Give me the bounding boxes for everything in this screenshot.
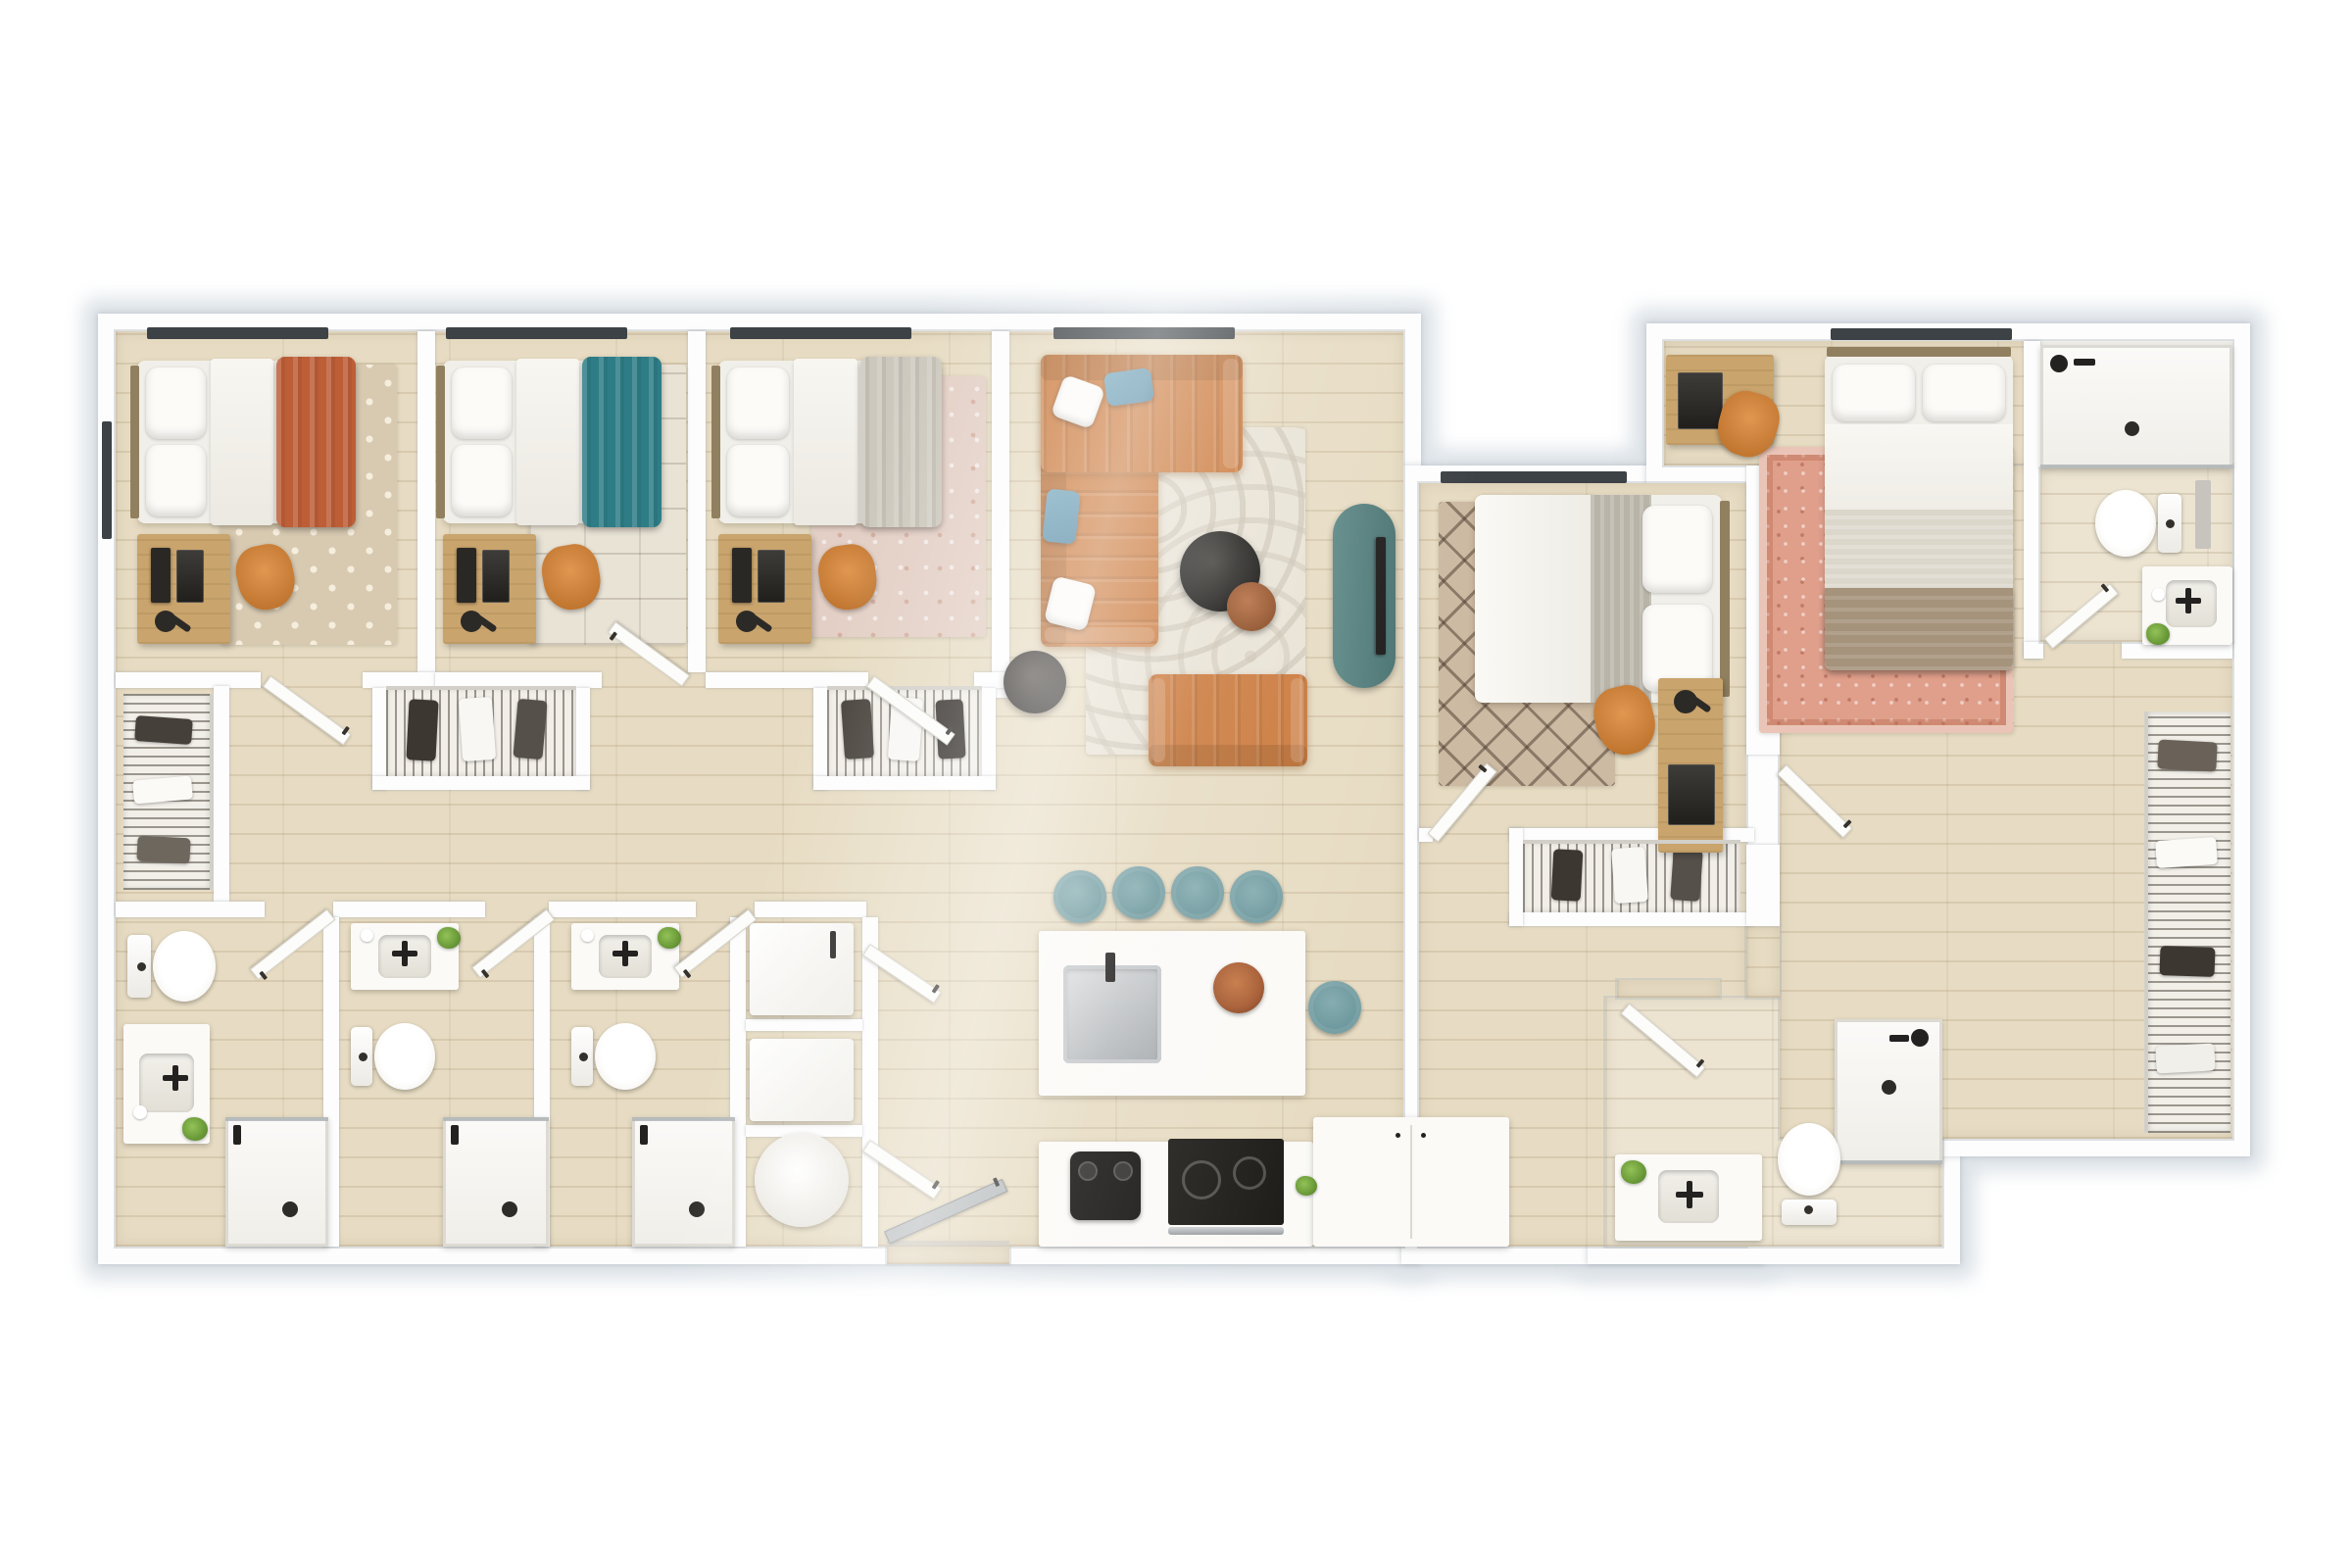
- closet-wire-shelf: [386, 688, 576, 776]
- range-cooktop: [1168, 1139, 1284, 1225]
- oven-handle: [1168, 1227, 1284, 1235]
- floor-plan: [0, 0, 2352, 1568]
- toilet: [127, 929, 221, 1005]
- media-console: [1333, 504, 1396, 688]
- teal-throw-pillow: [1103, 367, 1154, 407]
- refrigerator-counter: [1313, 1117, 1509, 1247]
- closet-rail: [210, 694, 214, 890]
- desk: [1658, 678, 1723, 853]
- wall-closet1: [214, 686, 229, 902]
- soap-jar: [581, 929, 594, 942]
- washer: [750, 923, 854, 1015]
- wall-bath4: [2024, 341, 2040, 659]
- toilet: [351, 1021, 445, 1094]
- desk: [137, 534, 230, 644]
- shower-stall: [225, 1117, 328, 1247]
- accent-table: [1227, 582, 1276, 631]
- toilet: [2095, 488, 2185, 559]
- side-table: [1004, 651, 1066, 713]
- wall-bathrow-top: [549, 902, 696, 917]
- wall-bathrow-top: [755, 902, 866, 917]
- closet-wire-shelf: [123, 694, 210, 890]
- bed: [137, 361, 353, 523]
- wall-closet3: [982, 688, 996, 790]
- wall-closet4: [1509, 828, 1523, 926]
- wall-closet3: [813, 776, 996, 790]
- wall-br1-br2: [417, 331, 435, 672]
- shower-glass: [1835, 1160, 1942, 1164]
- toilet: [571, 1021, 665, 1094]
- toilet-ledge: [2195, 480, 2211, 549]
- wall-right-unit-left: [1746, 845, 1780, 926]
- window-icon: [102, 421, 112, 539]
- wall-utility-corridor: [862, 917, 878, 1247]
- plant-icon: [1296, 1176, 1317, 1196]
- window-icon: [1831, 328, 2012, 340]
- wall-closet2: [372, 688, 386, 790]
- loveseat: [1149, 674, 1307, 766]
- desk: [443, 534, 536, 644]
- plant-icon: [658, 927, 681, 949]
- coffee-maker: [1070, 1151, 1141, 1220]
- wall-bathrow-top: [333, 902, 485, 917]
- wall-closet3: [813, 688, 827, 790]
- tv-icon: [1376, 537, 1386, 655]
- plant-icon: [182, 1117, 208, 1141]
- shower-stall: [1835, 1019, 1942, 1164]
- plant-icon: [1621, 1160, 1646, 1184]
- soap-jar: [133, 1105, 147, 1119]
- window-icon: [446, 327, 627, 339]
- window-icon: [1053, 327, 1235, 339]
- wall-br2-br3: [688, 331, 706, 672]
- wall-utility-shelf: [746, 1019, 862, 1031]
- plant-icon: [437, 927, 461, 949]
- bed: [1825, 355, 2013, 670]
- shower-glass: [443, 1117, 549, 1121]
- counter-stool: [1230, 870, 1283, 923]
- counter-stool: [1171, 866, 1224, 919]
- wall-closet2: [576, 688, 590, 790]
- floor-corridor-patch: [1746, 926, 1780, 998]
- closet-rail: [827, 686, 982, 690]
- copper-bowl-icon: [1213, 962, 1264, 1013]
- soap-jar: [2152, 588, 2165, 601]
- bed: [718, 361, 939, 523]
- shower-glass: [225, 1117, 328, 1121]
- window-icon: [730, 327, 911, 339]
- wall-closet2: [372, 776, 590, 790]
- toilet: [1776, 1123, 1844, 1241]
- shower-stall: [632, 1117, 735, 1247]
- wall-br3-living: [992, 331, 1009, 698]
- floor-bedroom4-door-gap: [1617, 980, 1720, 998]
- shower-glass: [2040, 465, 2232, 468]
- teal-throw-pillow: [1042, 488, 1080, 544]
- floor-entry-gap: [887, 1247, 1009, 1264]
- dryer: [750, 1039, 854, 1121]
- plant-icon: [2146, 623, 2170, 645]
- closet-rail: [2144, 711, 2148, 1133]
- closet-rail: [386, 686, 576, 690]
- entry-threshold: [887, 1241, 1009, 1246]
- wall-closet4: [1509, 912, 1754, 926]
- counter-stool: [1308, 981, 1361, 1034]
- wall-bath4: [2024, 642, 2043, 659]
- wall-bathrow-top: [116, 902, 265, 917]
- water-heater: [755, 1133, 849, 1227]
- soap-jar: [361, 929, 373, 942]
- bed: [443, 361, 659, 523]
- window-icon: [1441, 471, 1627, 483]
- closet-rail: [1523, 840, 1740, 844]
- shower-stall: [443, 1117, 549, 1247]
- window-icon: [147, 327, 328, 339]
- counter-stool: [1053, 870, 1106, 923]
- kitchen-faucet: [1105, 953, 1115, 982]
- wall-br1-bottom: [116, 672, 261, 688]
- counter-stool: [1112, 866, 1165, 919]
- desk: [718, 534, 811, 644]
- bed: [1475, 495, 1722, 703]
- shower-stall: [2040, 345, 2232, 468]
- wardrobe-wire-shelf: [2148, 711, 2230, 1133]
- shower-glass: [632, 1117, 735, 1121]
